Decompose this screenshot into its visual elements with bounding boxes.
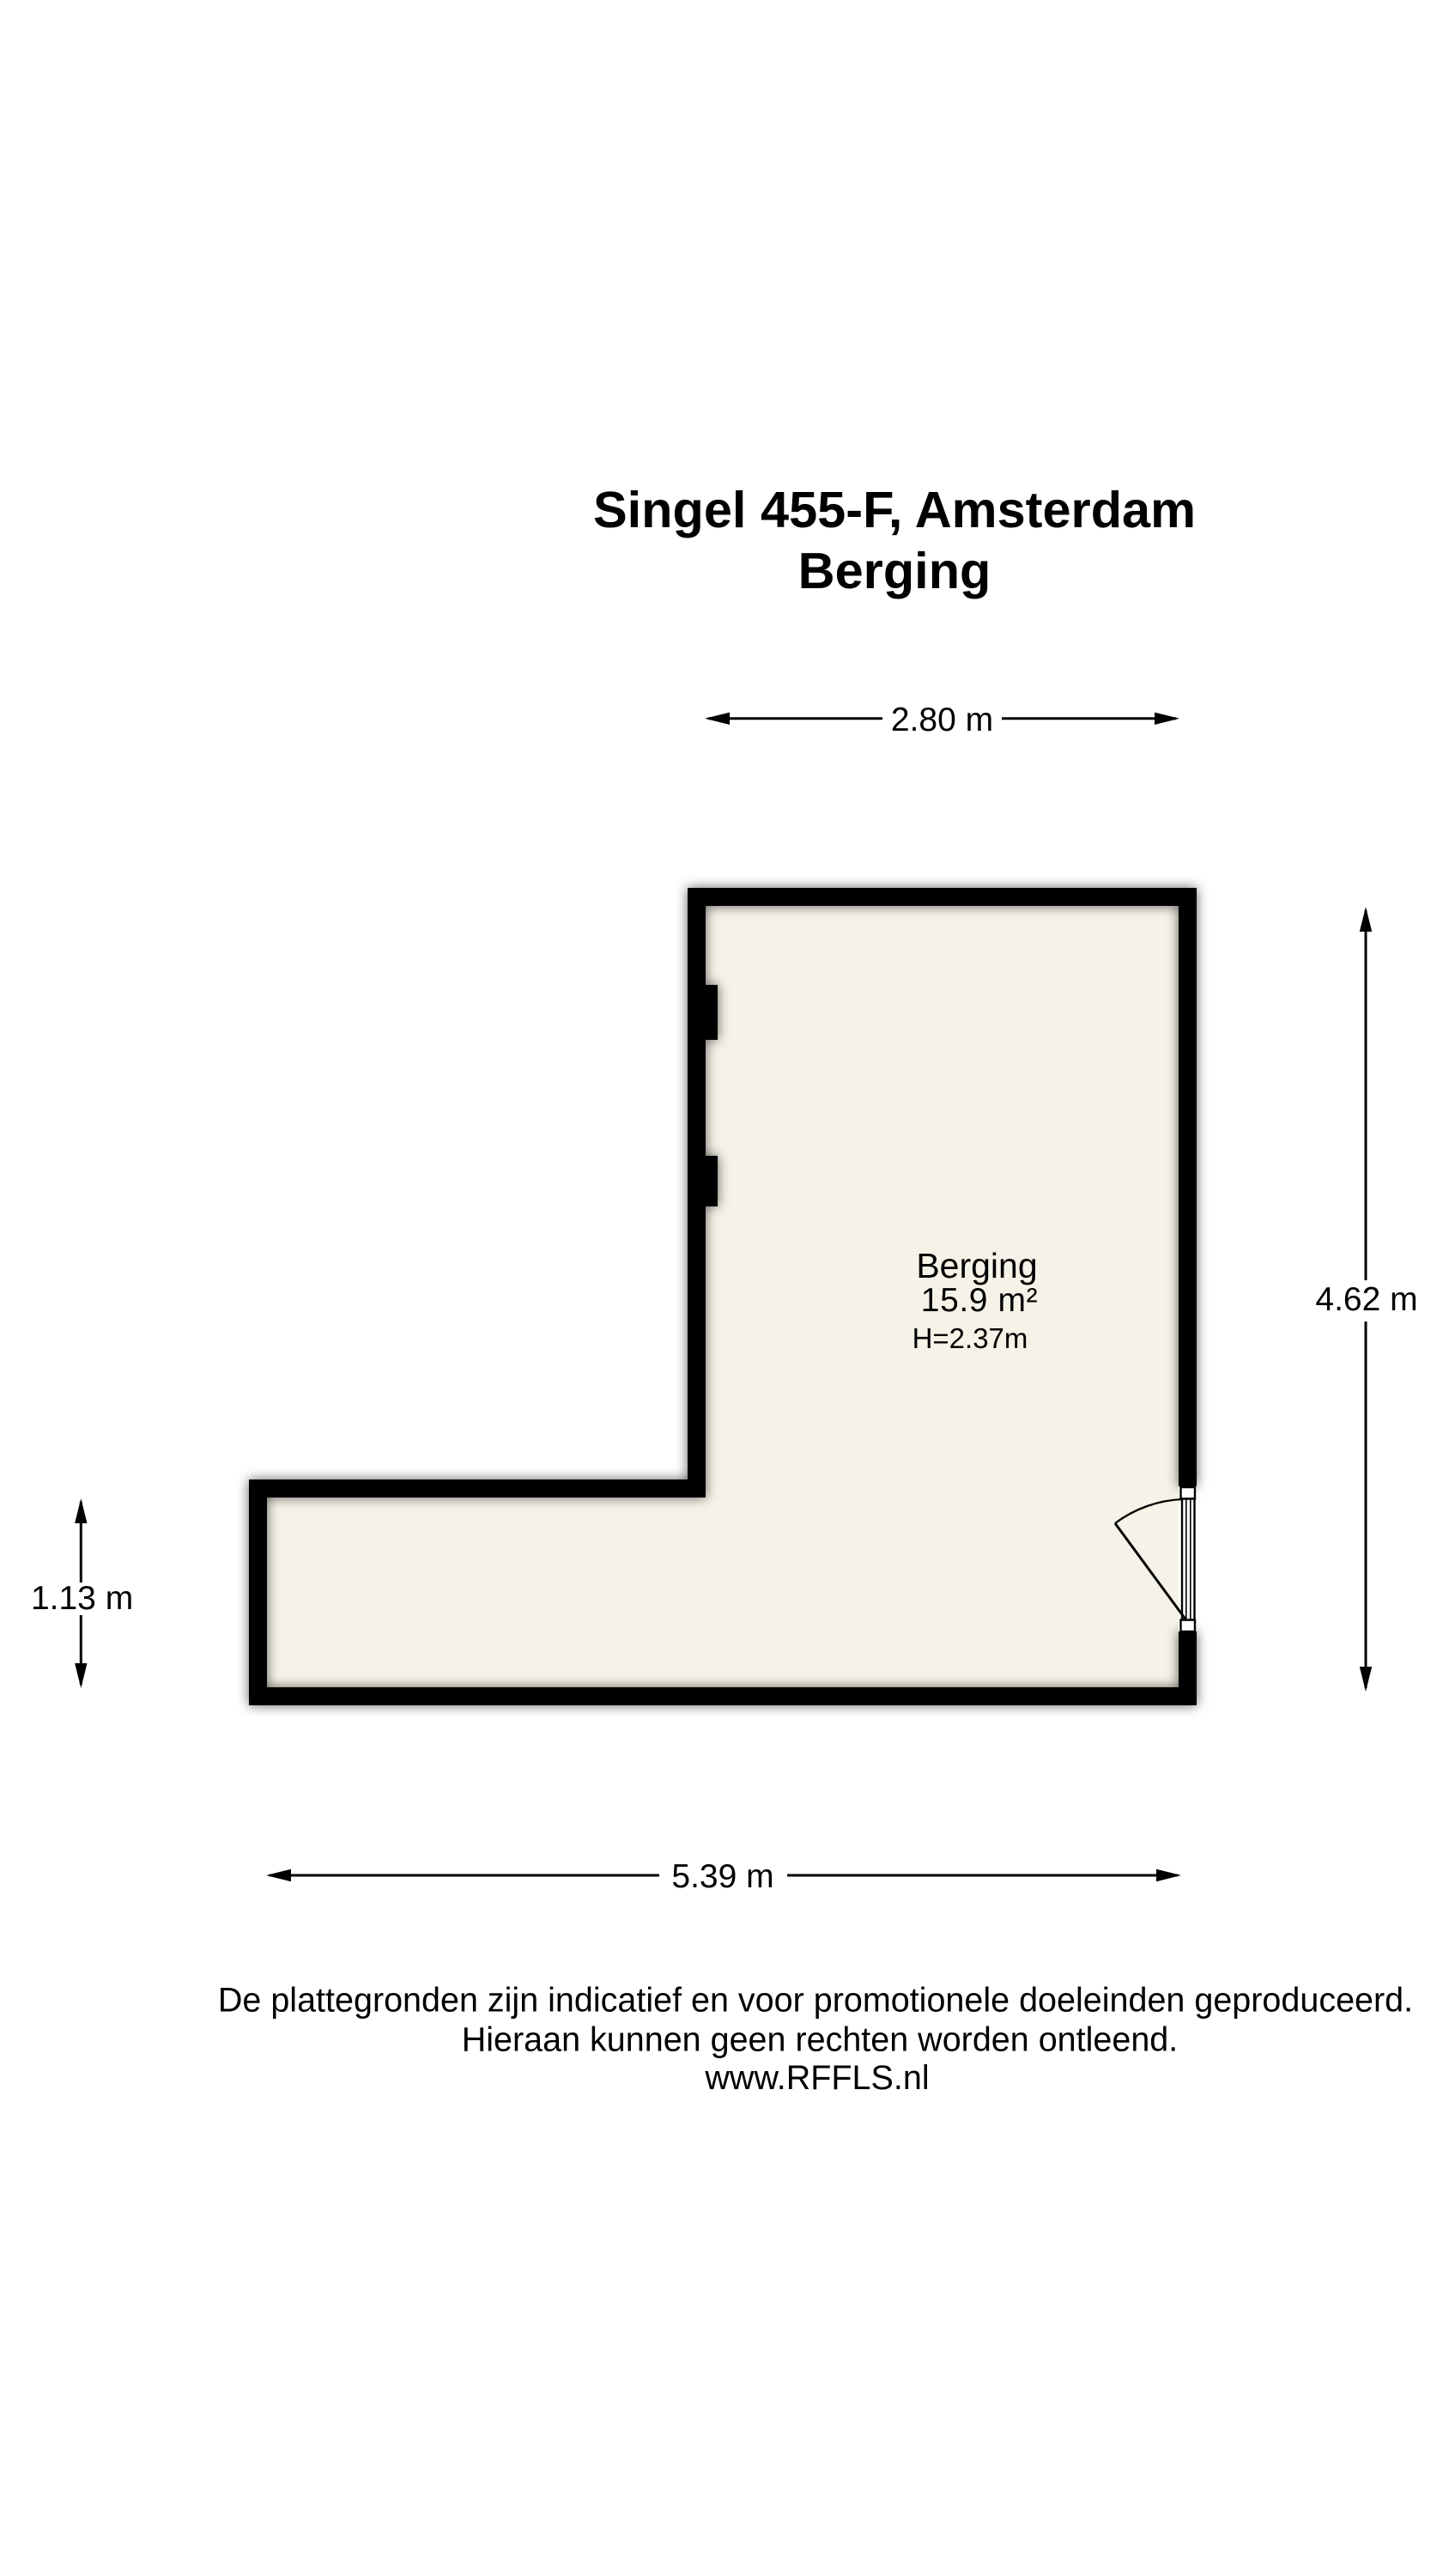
- svg-text:De plattegronden zijn indicati: De plattegronden zijn indicatief en voor…: [218, 1982, 1413, 2020]
- svg-text:Singel 455-F, Amsterdam: Singel 455-F, Amsterdam: [593, 481, 1196, 538]
- svg-text:www.RFFLS.nl: www.RFFLS.nl: [704, 2059, 929, 2097]
- svg-text:4.62 m: 4.62 m: [1315, 1281, 1417, 1318]
- svg-text:5.39 m: 5.39 m: [671, 1858, 773, 1895]
- svg-text:2.80 m: 2.80 m: [891, 702, 993, 738]
- svg-text:1.13 m: 1.13 m: [31, 1580, 133, 1617]
- svg-text:Berging: Berging: [916, 1246, 1037, 1285]
- svg-text:H=2.37m: H=2.37m: [912, 1322, 1028, 1354]
- svg-text:15.9 m²: 15.9 m²: [921, 1282, 1038, 1319]
- svg-text:Berging: Berging: [798, 542, 991, 599]
- svg-text:Hieraan kunnen geen rechten wo: Hieraan kunnen geen rechten worden ontle…: [462, 2020, 1179, 2058]
